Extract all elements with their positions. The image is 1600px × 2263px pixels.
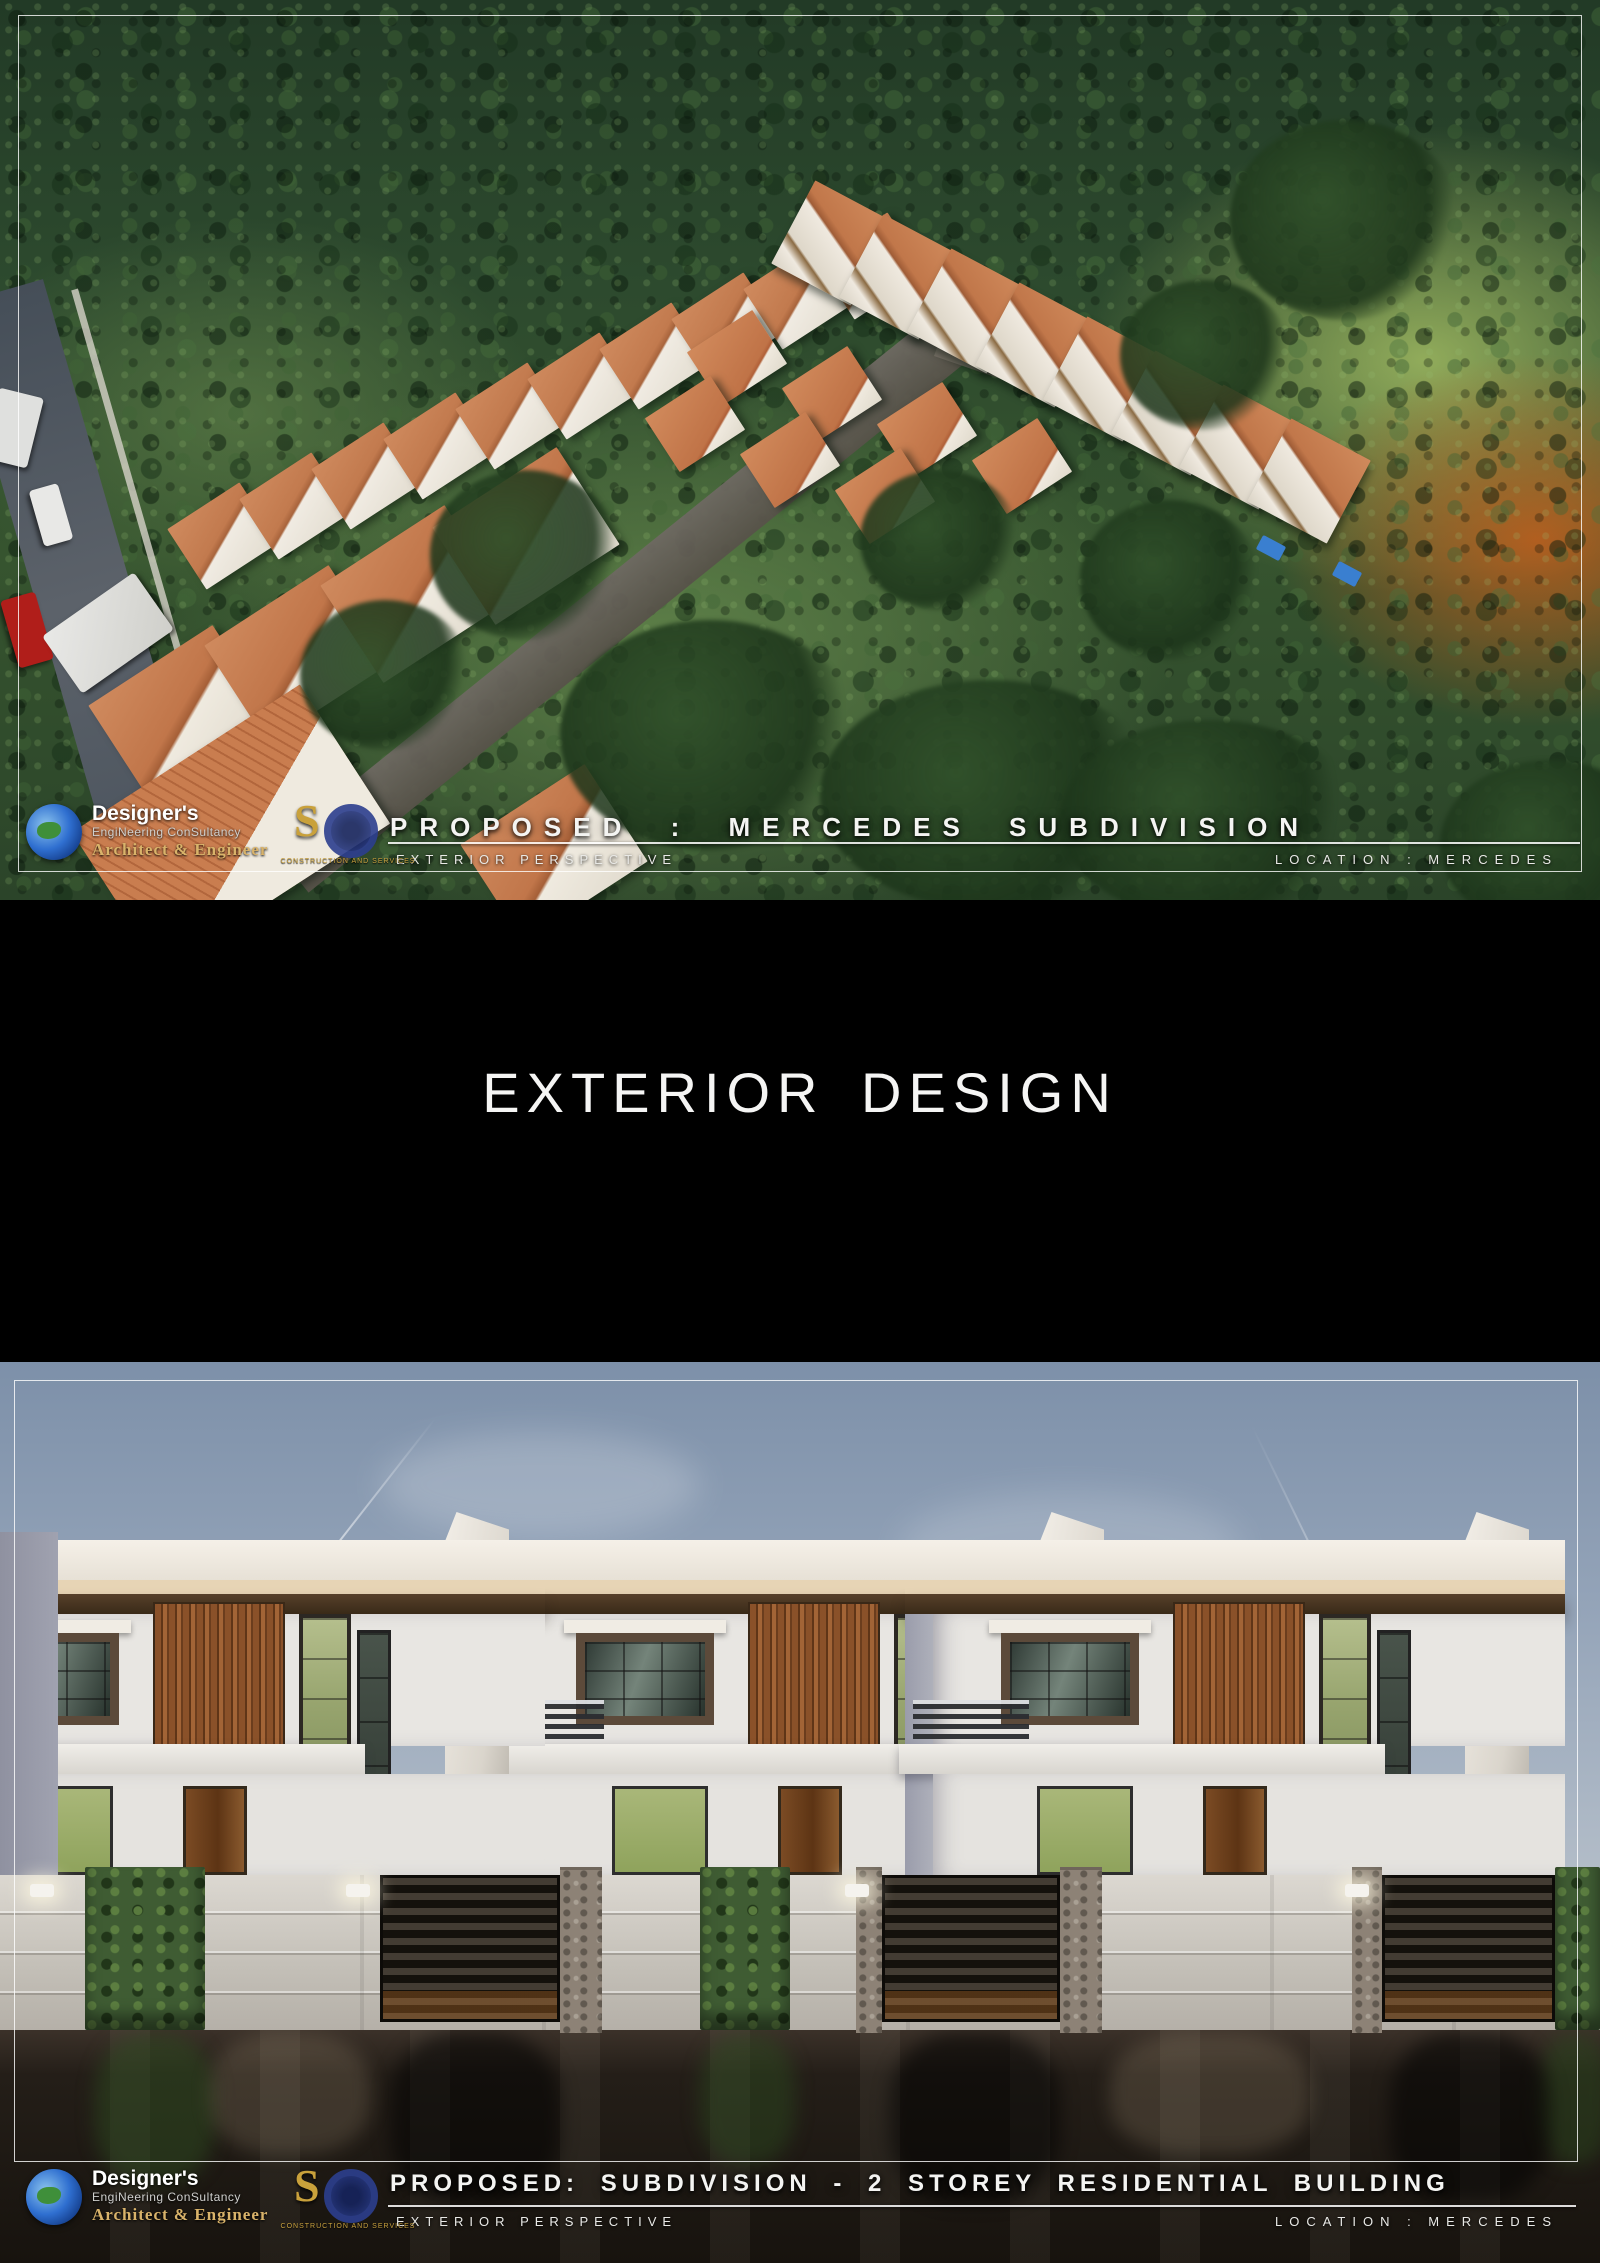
sg-logo: S CONSTRUCTION AND SERVICES (294, 2161, 404, 2245)
render-title: PROPOSED: SUBDIVISION - 2 STOREY RESIDEN… (390, 2170, 1450, 2198)
wall-lamp (346, 1884, 370, 1897)
firm-consultancy: EngiNeering ConSultancy (92, 826, 268, 840)
title-rule (388, 2205, 1576, 2207)
wood-slat-panel (153, 1602, 285, 1746)
roof-parapet (905, 1540, 1565, 1580)
window-canopy (989, 1620, 1151, 1633)
firm-name: Designer's (92, 2167, 268, 2191)
firm-profession: Architect & Engineer (92, 2205, 268, 2225)
sg-logo-g-icon (324, 804, 378, 858)
section-title: EXTERIOR DESIGN (0, 1060, 1600, 1125)
floor-slab (899, 1744, 1385, 1774)
render-location: LOCATION : MERCEDES (1275, 852, 1558, 867)
firm-consultancy: EngiNeering ConSultancy (92, 2191, 268, 2205)
wood-door (183, 1786, 247, 1875)
stone-pillar (560, 1867, 602, 2033)
wall-lamp (30, 1884, 54, 1897)
hedge (85, 1867, 205, 2030)
firm-name-block: Designer's EngiNeering ConSultancy Archi… (92, 802, 268, 859)
title-rule (388, 842, 1580, 844)
ground-window (1037, 1786, 1133, 1875)
driveway-gate (882, 1875, 1060, 2022)
hedge (700, 1867, 790, 2030)
render-location: LOCATION : MERCEDES (1275, 2214, 1558, 2229)
neighbor-side-wall (0, 1532, 58, 1907)
wood-door (1203, 1786, 1267, 1875)
roof-parapet (0, 1540, 545, 1580)
aerial-render-panel: PROPOSED : MERCEDES SUBDIVISION EXTERIOR… (0, 0, 1600, 900)
stone-pillar (1060, 1867, 1102, 2033)
firm-profession: Architect & Engineer (92, 840, 268, 860)
section-divider: EXTERIOR DESIGN (0, 900, 1600, 1362)
wood-slat-panel (748, 1602, 880, 1746)
render-subtitle: EXTERIOR PERSPECTIVE (396, 852, 677, 867)
roof-fascia (905, 1580, 1565, 1594)
globe-logo-icon (26, 804, 82, 860)
firm-name: Designer's (92, 802, 268, 826)
ground-window (612, 1786, 708, 1875)
sg-logo-s-icon: S (294, 2159, 320, 2212)
render-subtitle: EXTERIOR PERSPECTIVE (396, 2214, 677, 2229)
window-canopy (564, 1620, 726, 1633)
driveway-gate (380, 1875, 560, 2022)
brand-block: Designer's EngiNeering ConSultancy Archi… (26, 2161, 406, 2249)
street-render-panel: PROPOSED: SUBDIVISION - 2 STOREY RESIDEN… (0, 1362, 1600, 2263)
wall-lamp (1345, 1884, 1369, 1897)
sg-logo-g-icon (324, 2169, 378, 2223)
portfolio-sheet: PROPOSED : MERCEDES SUBDIVISION EXTERIOR… (0, 0, 1600, 2263)
balcony-railing (913, 1700, 1029, 1744)
sg-tagline: CONSTRUCTION AND SERVICES (278, 2223, 418, 2230)
sg-logo-s-icon: S (294, 794, 320, 847)
brand-block: Designer's EngiNeering ConSultancy Archi… (26, 796, 406, 884)
sg-logo: S CONSTRUCTION AND SERVICES (294, 796, 404, 880)
roof-fascia (0, 1580, 545, 1594)
wall-lamp (845, 1884, 869, 1897)
hedge (1555, 1867, 1600, 2030)
wood-slat-panel (1173, 1602, 1305, 1746)
globe-logo-icon (26, 2169, 82, 2225)
firm-name-block: Designer's EngiNeering ConSultancy Archi… (92, 2167, 268, 2224)
render-title: PROPOSED : MERCEDES SUBDIVISION (390, 812, 1310, 843)
wood-door (778, 1786, 842, 1875)
driveway-gate (1382, 1875, 1555, 2022)
sg-tagline: CONSTRUCTION AND SERVICES (278, 858, 418, 865)
